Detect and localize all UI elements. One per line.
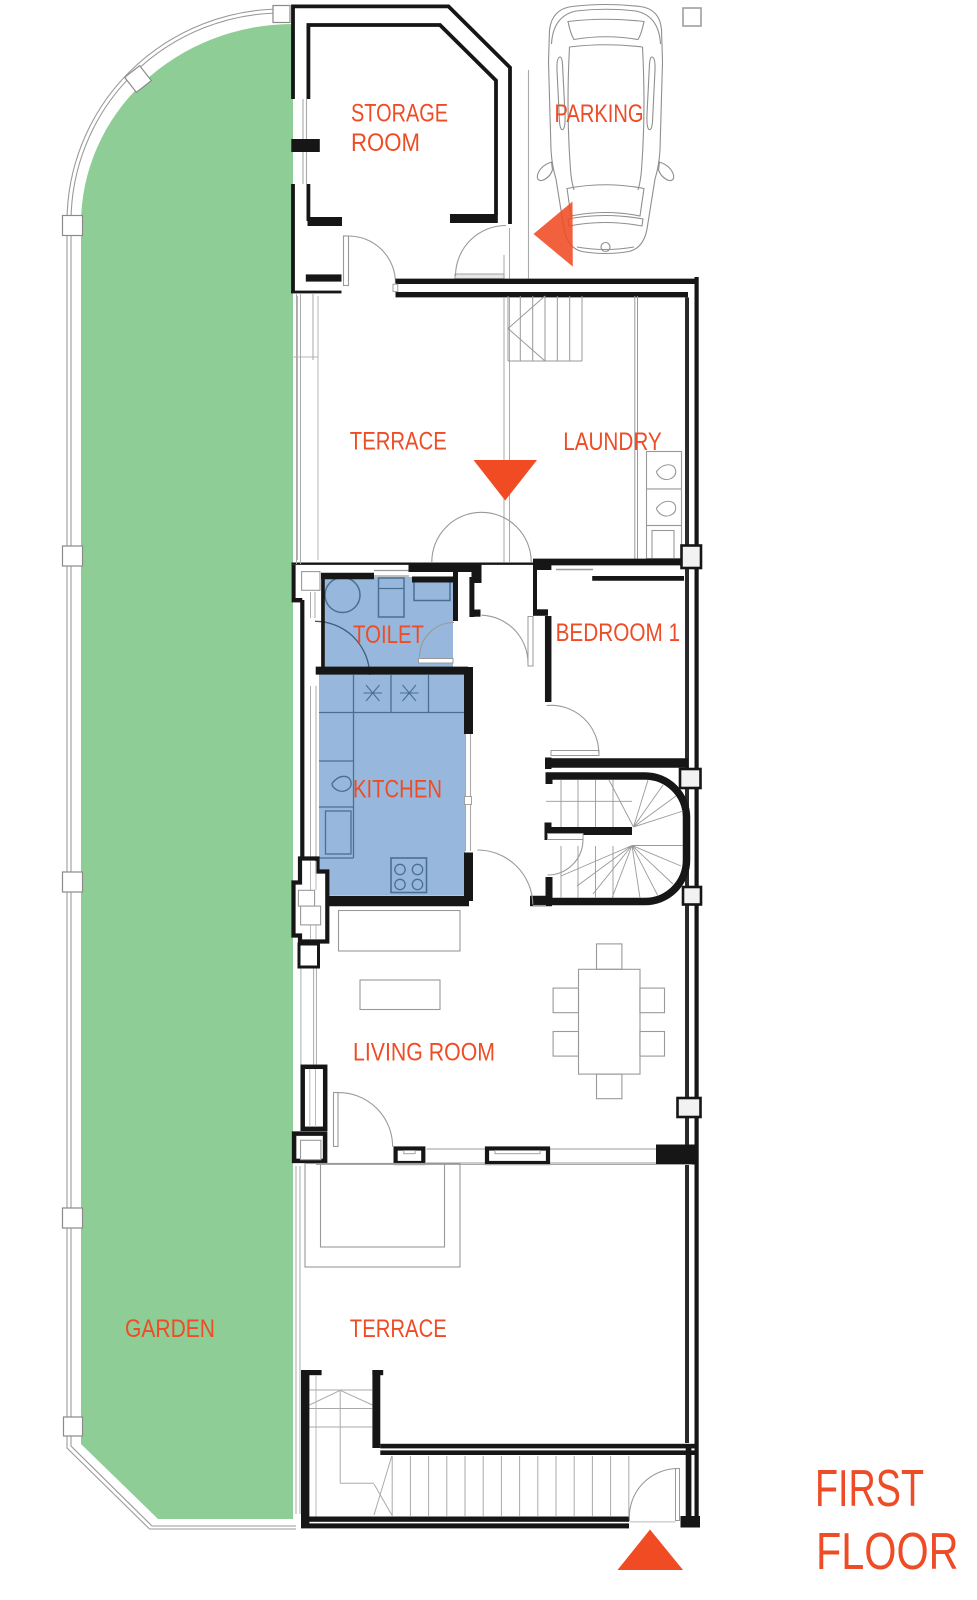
svg-text:ROOM: ROOM [351,129,420,157]
svg-text:STORAGE: STORAGE [351,100,448,128]
svg-text:TOILET: TOILET [353,621,424,649]
svg-text:TERRACE: TERRACE [350,428,447,456]
svg-text:KITCHEN: KITCHEN [353,776,442,804]
svg-text:TERRACE: TERRACE [350,1315,447,1343]
svg-text:PARKING: PARKING [555,100,644,128]
svg-text:LAUNDRY: LAUNDRY [563,428,662,456]
svg-text:BEDROOM 1: BEDROOM 1 [556,619,681,647]
svg-text:FIRST: FIRST [815,1460,924,1518]
svg-text:FLOOR: FLOOR [816,1523,959,1581]
svg-text:GARDEN: GARDEN [125,1315,215,1343]
svg-text:LIVING ROOM: LIVING ROOM [353,1039,495,1067]
